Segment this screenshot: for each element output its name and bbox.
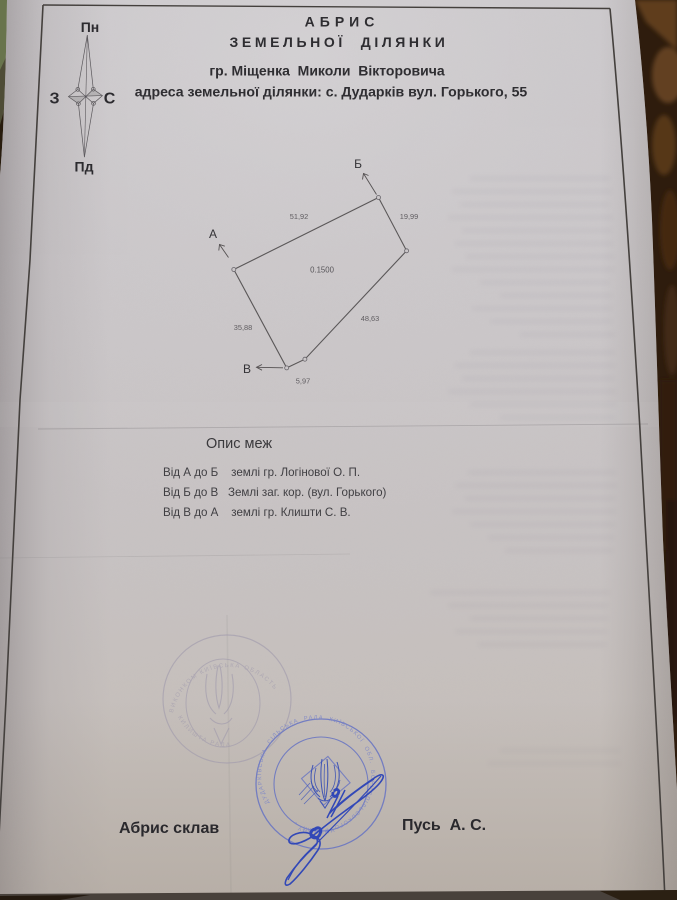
svg-text:Пусь А. С.: Пусь А. С.	[402, 817, 486, 834]
svg-text:35,88: 35,88	[234, 323, 253, 332]
svg-text:В: В	[243, 362, 251, 376]
svg-text:Від Б до В Землі заг. кор. (: Від Б до В Землі заг. кор. (вул. Горьког…	[163, 486, 387, 499]
svg-text:А: А	[209, 227, 217, 241]
svg-text:0.1500: 0.1500	[310, 265, 335, 274]
svg-text:Від В до А землі гр. Клишти: Від В до А землі гр. Клишти С. В.	[163, 506, 351, 519]
svg-text:З: З	[49, 91, 59, 108]
svg-text:С: С	[104, 91, 116, 108]
svg-text:Пн: Пн	[81, 19, 100, 35]
svg-text:гр. Міщенка Миколи Вікторови: гр. Міщенка Миколи Вікторовича	[209, 63, 445, 79]
svg-text:19,99: 19,99	[400, 212, 419, 221]
svg-text:Від А до Б землі гр. Логіно: Від А до Б землі гр. Логінової О. П.	[163, 466, 360, 479]
svg-text:51,92: 51,92	[290, 212, 309, 221]
svg-text:Б: Б	[354, 157, 362, 171]
svg-text:ЗЕМЕЛЬНОЇ ДІЛЯНКИ: ЗЕМЕЛЬНОЇ ДІЛЯНКИ	[230, 34, 449, 50]
svg-text:Пд: Пд	[75, 159, 94, 175]
svg-text:Опис меж: Опис меж	[206, 436, 272, 452]
svg-text:48,63: 48,63	[361, 314, 380, 323]
svg-text:АБРИС: АБРИС	[305, 14, 380, 30]
svg-text:Абрис склав: Абрис склав	[119, 820, 219, 837]
svg-text:5,97: 5,97	[296, 377, 310, 386]
svg-text:адреса земельної ділянки: с. Д: адреса земельної ділянки: с. Дударків ву…	[135, 84, 528, 100]
